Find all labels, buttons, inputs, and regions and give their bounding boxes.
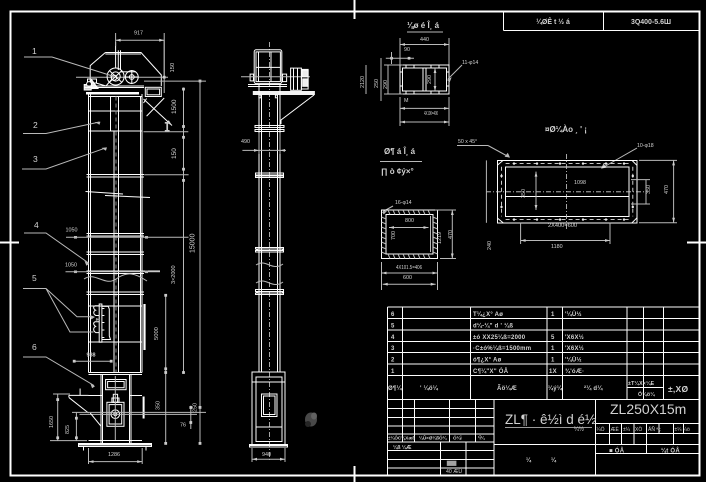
svg-text:440: 440	[420, 37, 429, 43]
svg-text:240: 240	[487, 241, 493, 250]
svg-text:4: 4	[391, 335, 395, 341]
svg-text:ÄÑ ªç: ÄÑ ªç	[648, 426, 661, 433]
svg-text:·C±ó%¼ß=1500mm: ·C±ó%¼ß=1500mm	[473, 345, 531, 352]
svg-text:250: 250	[193, 403, 199, 412]
svg-text:150: 150	[170, 63, 176, 73]
svg-text:¼Û×Ø¼ßÖ¼: ¼Û×Ø¼ßÖ¼	[419, 435, 448, 441]
svg-text:M: M	[404, 98, 409, 104]
svg-text:5: 5	[391, 324, 395, 330]
svg-text:150: 150	[171, 148, 178, 159]
svg-text:1: 1	[391, 369, 395, 375]
svg-text:C¶¼"X" ÓÅ: C¶¼"X" ÓÅ	[473, 367, 509, 375]
svg-text:40 ÆÛ: 40 ÆÛ	[446, 468, 462, 475]
svg-text:2X400=600: 2X400=600	[548, 223, 577, 229]
svg-text:3×2000: 3×2000	[171, 265, 177, 284]
svg-text:917: 917	[134, 31, 143, 37]
svg-text:470: 470	[664, 185, 670, 194]
svg-text:¼ý¼: ¼ý¼	[548, 385, 563, 392]
svg-text:1650: 1650	[49, 416, 55, 428]
svg-text:290: 290	[383, 80, 389, 89]
svg-text:¼Ö: ¼Ö	[597, 426, 605, 433]
svg-text:5000: 5000	[154, 327, 160, 340]
svg-text:ZL¶ · ê½ì d é½: ZL¶ · ê½ì d é½	[505, 412, 596, 427]
svg-text:90: 90	[404, 47, 410, 53]
svg-text:'¼Ü½: '¼Ü½	[565, 311, 582, 318]
svg-text:4: 4	[34, 220, 39, 230]
svg-text:¼ß ¼Æ: ¼ß ¼Æ	[393, 444, 411, 451]
svg-text:1500: 1500	[171, 99, 178, 114]
svg-text:1: 1	[32, 46, 37, 56]
svg-text:±,XØ: ±,XØ	[668, 384, 688, 394]
svg-text:6: 6	[32, 342, 37, 352]
svg-text:4X100=400: 4X100=400	[424, 111, 438, 117]
svg-text:350: 350	[156, 401, 162, 410]
svg-text:±¼ ¼ö: ±¼ ¼ö	[675, 427, 690, 433]
svg-text:Ö¼Ì: Ö¼Ì	[453, 434, 462, 441]
svg-text:'¼Ü½: '¼Ü½	[565, 357, 582, 364]
svg-text:¼t ÓÅ: ¼t ÓÅ	[661, 447, 680, 455]
svg-text:,Xæß: ,Xæß	[404, 436, 415, 441]
svg-text:50 x 45°: 50 x 45°	[458, 139, 477, 145]
svg-text:'X6X½: 'X6X½	[565, 334, 584, 341]
svg-text:¼ØÊ t ½ á: ¼ØÊ t ½ á	[536, 17, 570, 26]
svg-text:Ó¼ö¼: Ó¼ö¼	[638, 390, 655, 398]
svg-text:²¼ d¼: ²¼ d¼	[584, 385, 603, 392]
svg-text:XÖ: XÖ	[635, 426, 642, 433]
svg-text:490: 490	[241, 139, 250, 145]
svg-text:800: 800	[405, 218, 414, 224]
svg-text:2120: 2120	[360, 76, 366, 88]
svg-text:Ø¶¼: Ø¶¼	[388, 385, 403, 392]
svg-text:d¼-¼" d ' ¼ß: d¼-¼" d ' ¼ß	[473, 323, 513, 330]
svg-text:4X101.5=406: 4X101.5=406	[396, 265, 422, 271]
svg-text:1: 1	[551, 312, 555, 318]
svg-text:Ø¶ á Î¸ á: Ø¶ á Î¸ á	[384, 147, 416, 156]
svg-text:ÆÈ: ÆÈ	[611, 426, 620, 433]
svg-text:ó¶¿X° Aø: ó¶¿X° Aø	[473, 358, 502, 364]
svg-text:1050: 1050	[65, 262, 77, 268]
svg-text:±T¼X×¼E: ±T¼X×¼E	[628, 380, 655, 387]
svg-text:290: 290	[427, 75, 433, 84]
svg-text:11-φ14: 11-φ14	[462, 60, 478, 66]
svg-text:¹Î¼: ¹Î¼	[478, 434, 486, 441]
svg-text:1180: 1180	[551, 244, 563, 250]
svg-text:3Q400-5.6Ш: 3Q400-5.6Ш	[631, 19, 671, 26]
svg-text:' ¼ö¼: ' ¼ö¼	[420, 385, 439, 392]
svg-text:¾'óÆ·: ¾'óÆ·	[565, 368, 584, 375]
svg-text:T¼¿X° Aø: T¼¿X° Aø	[473, 311, 503, 318]
svg-text:470: 470	[448, 230, 454, 239]
svg-text:76: 76	[180, 423, 186, 429]
svg-text:15000: 15000	[190, 233, 197, 253]
svg-text:1219: 1219	[437, 232, 443, 244]
svg-text:1050: 1050	[66, 228, 78, 234]
svg-text:10-φ18: 10-φ18	[637, 143, 654, 149]
svg-text:±¼: ±¼	[623, 427, 631, 433]
svg-text:700: 700	[391, 231, 397, 240]
svg-text:16-φ14: 16-φ14	[395, 200, 412, 206]
svg-text:■ ÓÅ: ■ ÓÅ	[609, 447, 625, 455]
svg-text:∏ ò ¢ý×°: ∏ ò ¢ý×°	[381, 167, 414, 176]
svg-text:1286: 1286	[108, 452, 120, 458]
svg-text:2: 2	[391, 358, 395, 364]
svg-text:±ó XX25¼ß=2000: ±ó XX25¼ß=2000	[473, 334, 526, 341]
svg-text:¼: ¼	[551, 457, 557, 464]
svg-text:⅛ø é Î¸ á: ⅛ø é Î¸ á	[407, 21, 440, 30]
svg-text:350: 350	[521, 189, 527, 198]
svg-text:¼½: ¼½	[574, 426, 584, 433]
svg-text:'X6X½: 'X6X½	[565, 345, 584, 352]
svg-text:1: 1	[551, 346, 555, 352]
svg-text:¤Ø¼Ào ¸ ' ¡: ¤Ø¼Ào ¸ ' ¡	[545, 125, 587, 134]
svg-text:Ãö¼Æ: Ãö¼Æ	[497, 385, 517, 392]
svg-text:350: 350	[646, 185, 652, 194]
svg-text:988: 988	[87, 353, 96, 359]
svg-text:1: 1	[551, 358, 555, 364]
svg-text:940: 940	[262, 452, 271, 458]
svg-text:6: 6	[391, 312, 395, 318]
svg-text:¼: ¼	[526, 457, 532, 464]
svg-text:2: 2	[33, 120, 38, 130]
svg-text:250: 250	[374, 79, 380, 88]
svg-text:5: 5	[32, 273, 37, 283]
svg-text:3: 3	[391, 346, 395, 352]
svg-text:1098: 1098	[574, 180, 586, 186]
svg-text:600: 600	[403, 275, 412, 281]
svg-text:ZL250X15m: ZL250X15m	[610, 401, 686, 417]
svg-text:3: 3	[33, 154, 38, 164]
svg-text:825: 825	[65, 425, 71, 434]
svg-text:1X: 1X	[549, 369, 557, 375]
svg-text:5: 5	[551, 335, 555, 341]
